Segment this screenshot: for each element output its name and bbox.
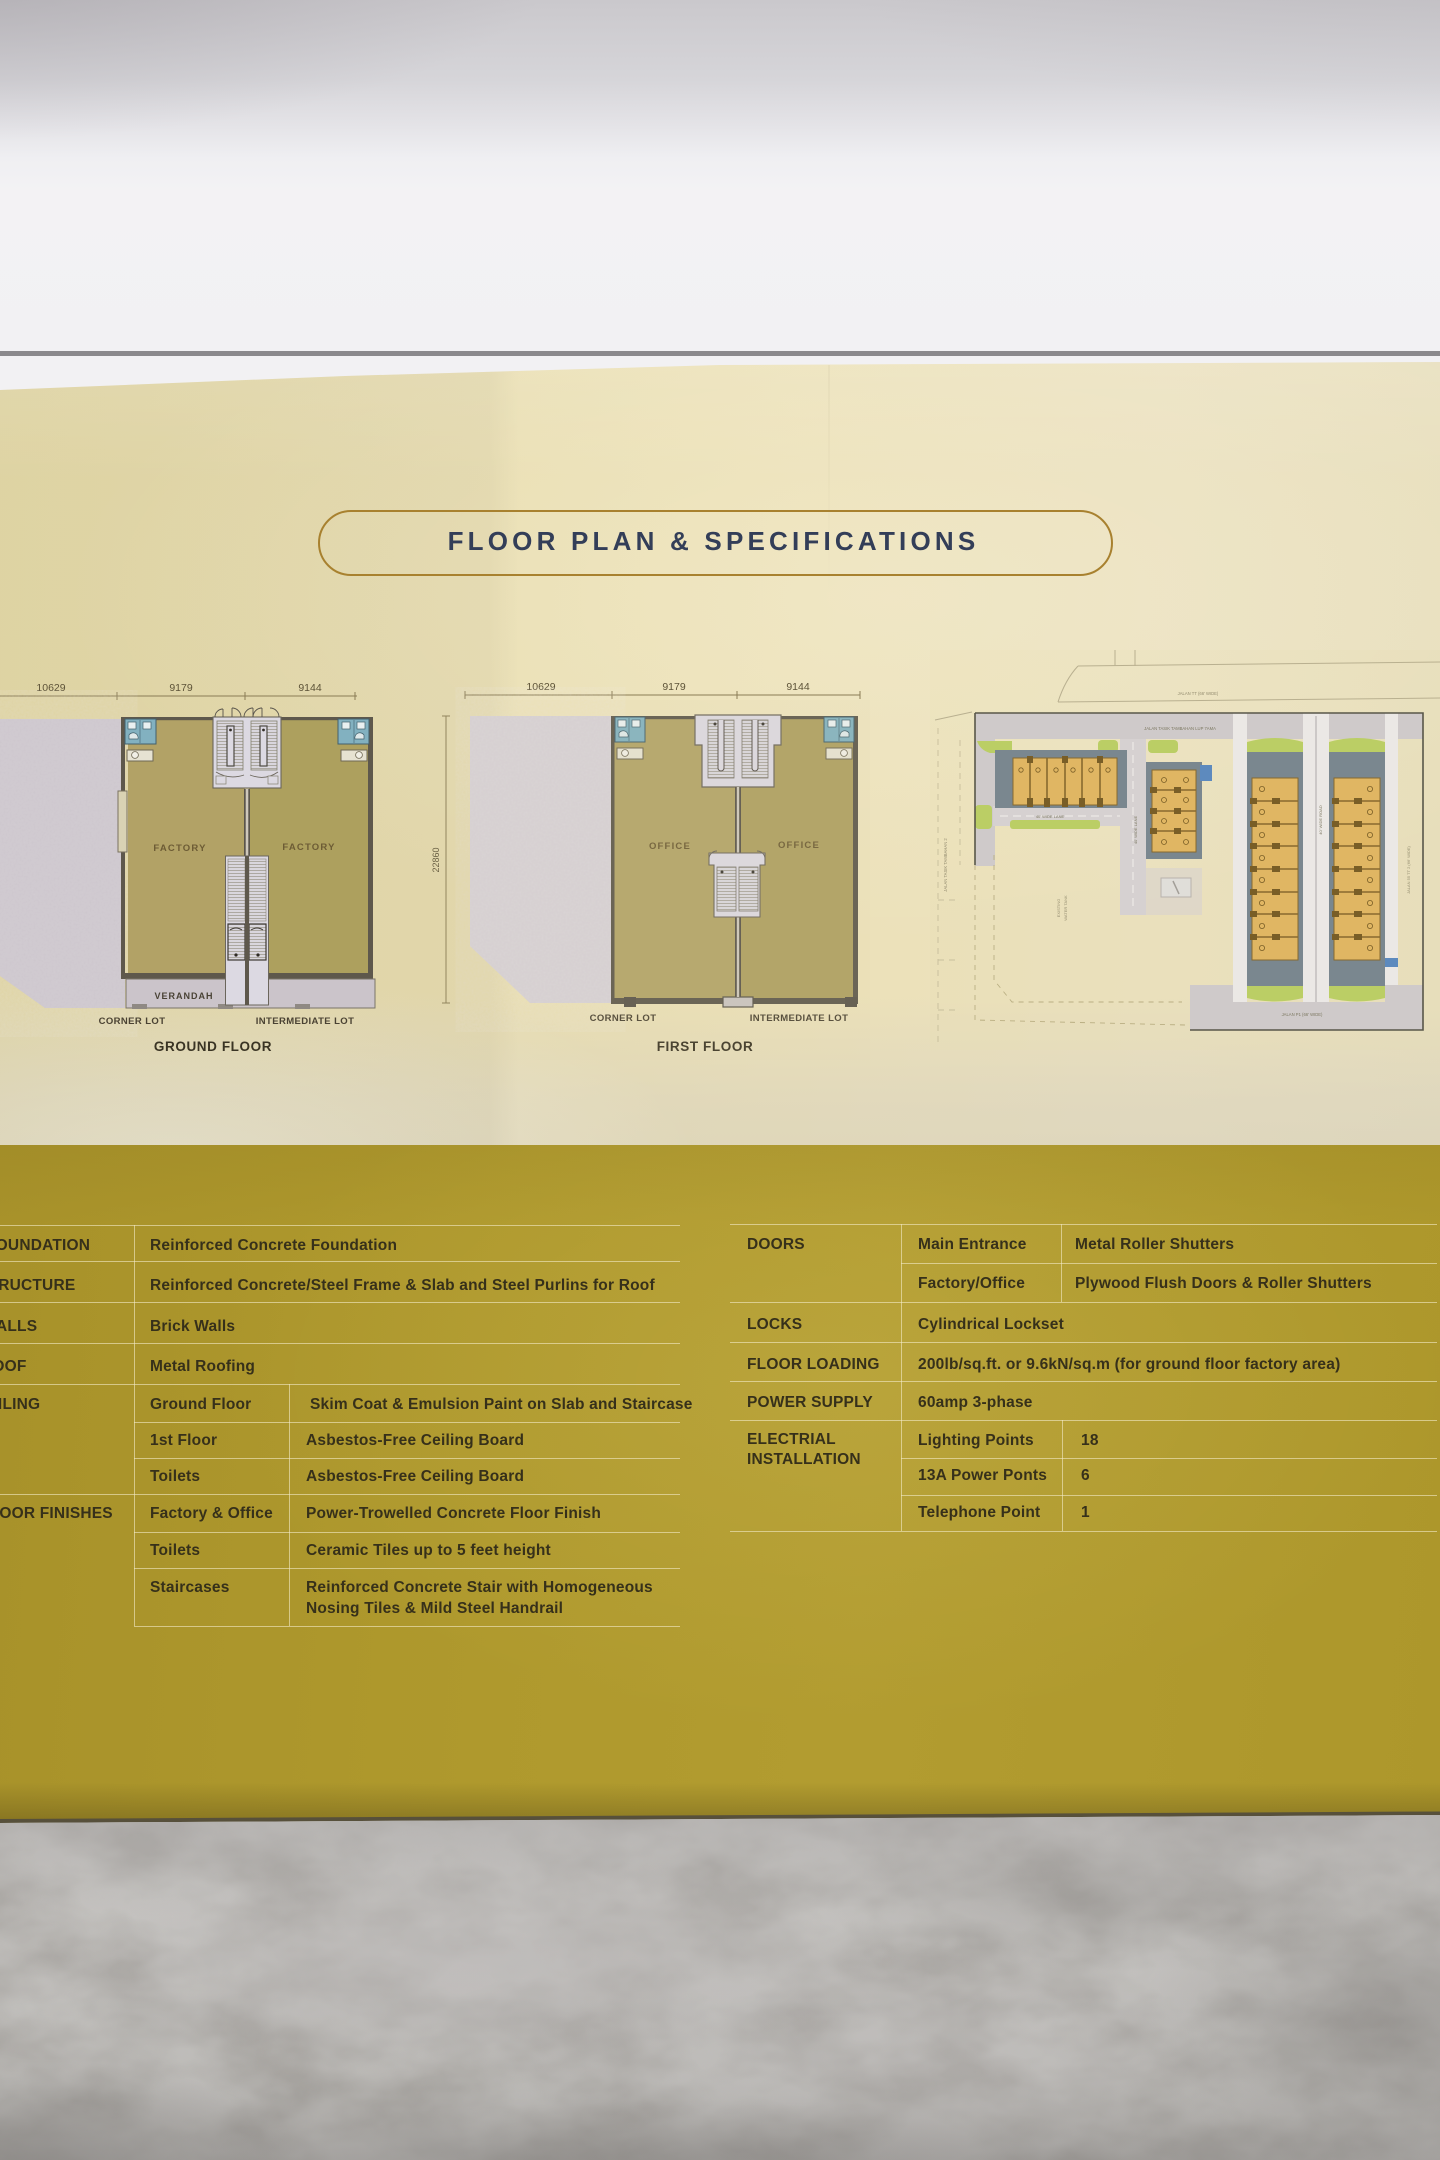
svg-text:9179: 9179 [662, 681, 686, 693]
svg-text:INTERMEDIATE LOT: INTERMEDIATE LOT [256, 1016, 355, 1027]
svg-text:GROUND FLOOR: GROUND FLOOR [154, 1039, 272, 1054]
svg-text:VERANDAH: VERANDAH [154, 991, 213, 1001]
svg-text:9144: 9144 [786, 681, 810, 693]
svg-text:9179: 9179 [169, 682, 193, 694]
svg-text:10629: 10629 [526, 681, 555, 693]
svg-text:FACTORY: FACTORY [282, 842, 335, 853]
svg-text:CORNER LOT: CORNER LOT [99, 1016, 166, 1027]
svg-text:9144: 9144 [298, 682, 322, 694]
svg-text:FACTORY: FACTORY [153, 843, 206, 854]
svg-text:10629: 10629 [36, 682, 65, 694]
